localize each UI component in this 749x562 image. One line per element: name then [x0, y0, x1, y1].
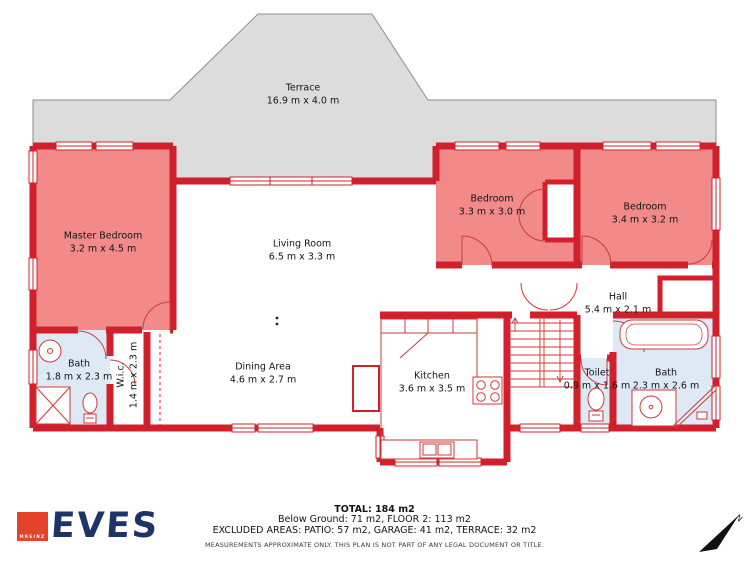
- label-wic: W.i.c. 1.4 m x 2.3 m: [116, 342, 141, 408]
- room-dims: 0.9 m x 1.6 m: [564, 380, 630, 393]
- eves-logo-red-square: MREINZ: [17, 512, 48, 541]
- floor-plan-drawing: N: [0, 0, 749, 562]
- room-dims: 5.4 m x 2.1 m: [585, 304, 651, 317]
- room-dims: 3.4 m x 3.2 m: [612, 214, 678, 227]
- label-dining: Dining Area 4.6 m x 2.7 m: [230, 362, 296, 387]
- label-living-room: Living Room 6.5 m x 3.3 m: [269, 239, 335, 264]
- room-name: Living Room: [269, 239, 335, 252]
- room-name: Dining Area: [230, 362, 296, 375]
- hall-closet-area: [660, 278, 716, 315]
- label-master-bedroom: Master Bedroom 3.2 m x 4.5 m: [64, 231, 142, 256]
- kitchen-counter-top: [381, 319, 477, 333]
- label-bath-right: Bath 2.3 m x 2.6 m: [633, 368, 699, 393]
- room-dims: 16.9 m x 4.0 m: [267, 95, 339, 108]
- bedroom-closet-area: [547, 184, 575, 238]
- room-name: W.i.c.: [116, 342, 129, 408]
- room-name: Terrace: [267, 83, 339, 96]
- room-dims: 6.5 m x 3.3 m: [269, 251, 335, 264]
- room-dims: 1.8 m x 2.3 m: [46, 371, 112, 384]
- eves-logo-badge: MREINZ: [18, 534, 47, 539]
- room-dims: 3.2 m x 4.5 m: [64, 243, 142, 256]
- room-dims: 4.6 m x 2.7 m: [230, 374, 296, 387]
- room-name: Bath: [46, 359, 112, 372]
- room-name: Hall: [585, 292, 651, 305]
- room-name: Kitchen: [399, 371, 465, 384]
- room-dims: 2.3 m x 2.6 m: [633, 380, 699, 393]
- label-terrace: Terrace 16.9 m x 4.0 m: [267, 83, 339, 108]
- fireplace-island: [353, 366, 379, 411]
- label-toilet: Toilet 0.9 m x 1.6 m: [564, 368, 630, 393]
- bath-left-toilet: [83, 393, 97, 413]
- room-name: Master Bedroom: [64, 231, 142, 244]
- label-kitchen: Kitchen 3.6 m x 3.5 m: [399, 371, 465, 396]
- room-dims: 3.3 m x 3.0 m: [459, 206, 525, 219]
- room-dims: 3.6 m x 3.5 m: [399, 383, 465, 396]
- vanity: [632, 390, 676, 426]
- label-bedroom-small: Bedroom 3.3 m x 3.0 m: [459, 194, 525, 219]
- label-bath-left: Bath 1.8 m x 2.3 m: [46, 359, 112, 384]
- room-dims: 1.4 m x 2.3 m: [128, 342, 141, 408]
- label-bedroom-large: Bedroom 3.4 m x 3.2 m: [612, 202, 678, 227]
- floor-plan-page: N Terrace 16.9 m x 4.0 m Master Bedroom …: [0, 0, 749, 562]
- room-name: Toilet: [564, 368, 630, 381]
- eves-logo: MREINZ EVES: [17, 512, 159, 541]
- eves-logo-wordmark: EVES: [50, 512, 160, 541]
- room-name: Bedroom: [612, 202, 678, 215]
- room-name: Bath: [633, 368, 699, 381]
- label-hall: Hall 5.4 m x 2.1 m: [585, 292, 651, 317]
- room-name: Bedroom: [459, 194, 525, 207]
